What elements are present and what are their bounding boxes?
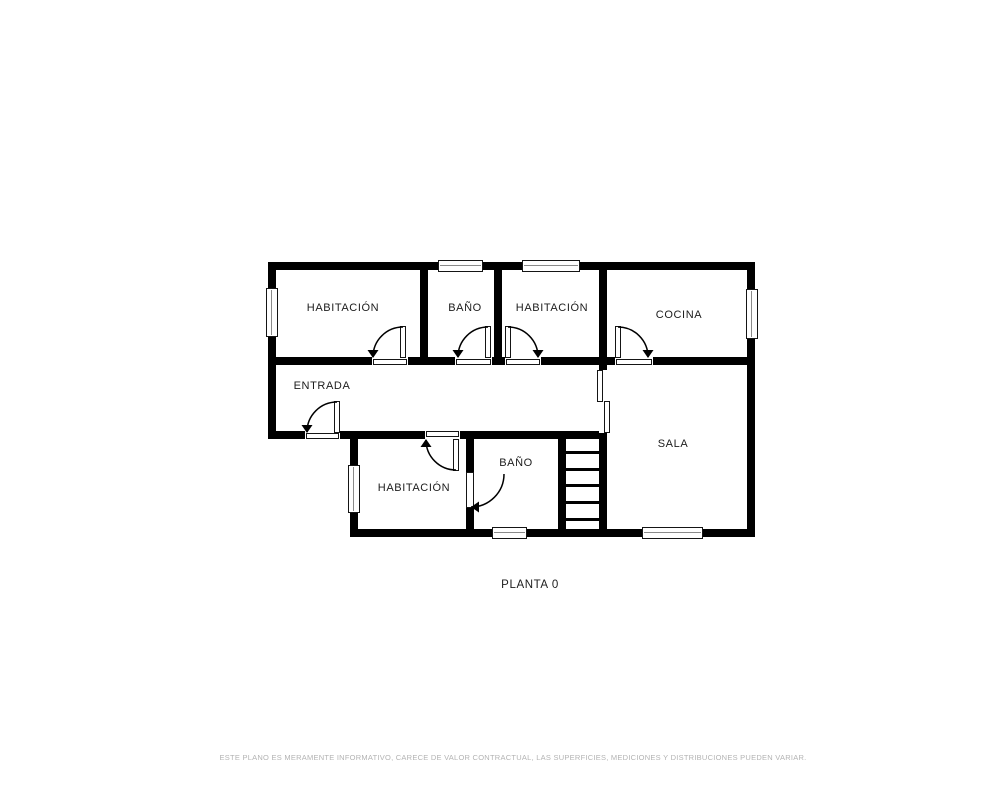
room-label-bano-1: BAÑO [448, 302, 482, 314]
door-arc-habitacion-1 [373, 327, 403, 357]
stair-tread [566, 501, 599, 504]
door-leaf-habitacion-3 [453, 439, 459, 471]
door-threshold [506, 359, 540, 365]
door-leaf-entrada [334, 401, 340, 433]
room-label-entrada: ENTRADA [294, 380, 351, 392]
door-threshold [616, 359, 652, 365]
wall-hab1-bano [420, 262, 428, 365]
room-label-habitacion-3: HABITACIÓN [378, 482, 450, 494]
stair-tread [566, 484, 599, 487]
disclaimer-text: ESTE PLANO ES MERAMENTE INFORMATIVO, CAR… [220, 753, 807, 762]
window-left-wall [266, 288, 278, 337]
room-label-bano-2: BAÑO [499, 457, 533, 469]
window-left-habitacion-3 [348, 465, 360, 513]
door-arc-cocina [618, 327, 648, 357]
stair-tread [566, 451, 599, 454]
stair-tread [566, 518, 599, 521]
door-leaf-cocina [615, 326, 621, 358]
door-arc-habitacion-3 [426, 440, 456, 470]
wall-bano-hab2 [494, 262, 502, 365]
window-bottom-bano-2 [492, 527, 527, 539]
stair-tread [566, 468, 599, 471]
door-arrow-habitacion-3 [421, 439, 432, 447]
room-label-cocina: COCINA [656, 309, 702, 321]
door-threshold [306, 433, 339, 439]
window-top-bano [438, 260, 483, 272]
door-leaf-bano-2 [466, 472, 474, 508]
floor-plan-page: HABITACIÓN BAÑO HABITACIÓN COCINA ENTRAD… [0, 0, 1000, 800]
room-label-habitacion-1: HABITACIÓN [307, 302, 379, 314]
wall-bano2-stairs [558, 439, 566, 529]
plan-title: PLANTA 0 [501, 579, 559, 591]
door-swing-overlay [0, 0, 1000, 800]
door-leaf-habitacion-2 [505, 326, 511, 358]
door-arc-bano-1 [458, 327, 488, 357]
door-leaf-bano-1 [485, 326, 491, 358]
window-top-habitacion-2 [522, 260, 580, 272]
door-arc-habitacion-2 [508, 327, 538, 357]
sliding-door-panel [597, 370, 603, 402]
room-label-habitacion-2: HABITACIÓN [516, 302, 588, 314]
wall-top [268, 262, 755, 270]
sliding-door-panel [604, 401, 610, 433]
window-bottom-sala [642, 527, 703, 539]
door-leaf-habitacion-1 [400, 326, 406, 358]
door-arc-entrada [307, 402, 337, 432]
door-threshold [373, 359, 407, 365]
door-threshold [426, 431, 459, 437]
room-label-sala: SALA [658, 438, 689, 450]
door-threshold [456, 359, 491, 365]
window-right-cocina [746, 289, 758, 339]
door-arc-bano-2 [471, 474, 504, 507]
